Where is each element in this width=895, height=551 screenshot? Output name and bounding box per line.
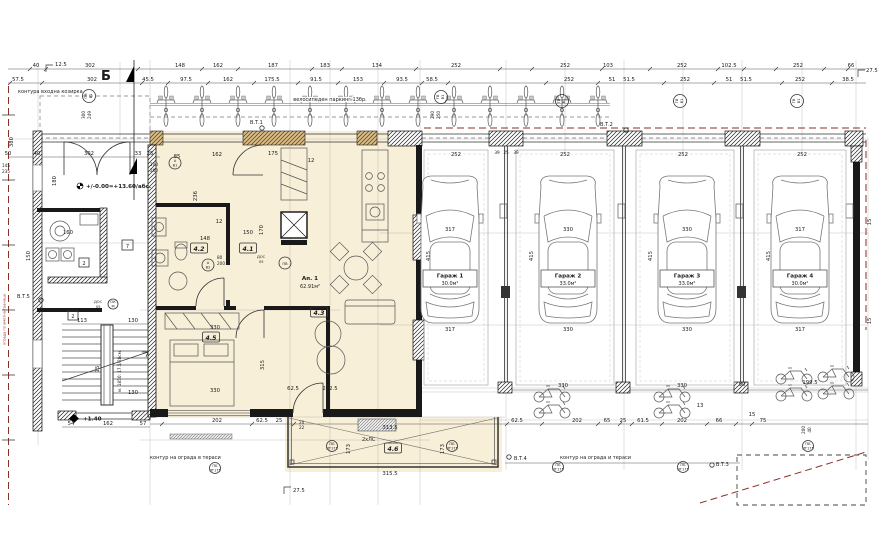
door-tag-circle: ОК xyxy=(110,300,116,304)
dim: 315.5 xyxy=(382,471,397,477)
dim: 50 xyxy=(5,151,12,157)
room-number: 4.6 xyxy=(388,446,400,453)
bicycle-icon xyxy=(301,86,319,126)
dim: 199.5 xyxy=(802,380,817,386)
dim: 12.5 xyxy=(55,62,67,68)
dim: 173 xyxy=(440,444,446,454)
garage-area: 33.0м² xyxy=(679,281,696,287)
property-boundary-left: ограда по имотна граница xyxy=(2,86,15,505)
dim: 252 xyxy=(560,152,570,158)
dim: 415 xyxy=(426,251,432,261)
dim: 62.5 xyxy=(511,418,523,424)
axis-letter: Б xyxy=(101,69,111,84)
dim: 330 xyxy=(682,327,693,333)
bicycle-icon xyxy=(229,86,247,126)
dim: 187 xyxy=(268,63,278,69)
bicycle-icon xyxy=(265,86,283,126)
dim: 162 xyxy=(212,152,222,158)
dim: 415 xyxy=(648,251,654,261)
dim: 252 xyxy=(677,63,687,69)
bicycle-icon xyxy=(157,86,175,126)
dim: 51 xyxy=(609,77,616,83)
dim: 252 xyxy=(451,152,461,158)
dim: 12 xyxy=(216,219,223,225)
fence-note-right: контур на ограда и тераси xyxy=(560,455,631,461)
dim: 62.5 xyxy=(256,418,268,424)
dim: 15 xyxy=(749,412,756,418)
dim: 315 xyxy=(260,360,266,370)
dim: 54 xyxy=(68,421,75,427)
dim: 12 xyxy=(308,158,315,164)
tag-text: ПБ xyxy=(680,463,686,467)
garage-labels: Гараж 1 30.0м² Гараж 2 33.0м² Гараж 3 33… xyxy=(423,270,827,287)
bicycle-icon xyxy=(589,86,607,126)
garage-name: Гараж 3 xyxy=(674,274,701,280)
dim: 27.5 xyxy=(293,488,305,494)
tag-text: ПТ175 xyxy=(677,468,689,472)
machinery-room xyxy=(46,214,98,261)
fence-note-left: контур на ограда в тераси xyxy=(150,455,221,461)
dim: 91.5 xyxy=(310,77,322,83)
room-number: 4.1 xyxy=(243,246,254,253)
tag-text: ПБ xyxy=(449,442,455,446)
dim: 236 xyxy=(193,190,199,201)
dim: 51.5 xyxy=(740,77,752,83)
survey-label: В.Т.2 xyxy=(600,122,613,128)
dim: 330 xyxy=(210,388,221,394)
bicycle-icon xyxy=(517,86,535,126)
tag-text: ПВ xyxy=(84,93,88,99)
room-number-box: 2 xyxy=(82,261,85,267)
bicycle-side-icon xyxy=(818,366,854,382)
dim: 162 xyxy=(213,63,223,69)
survey-label: В.Т.1 xyxy=(250,120,263,126)
dim: 15 xyxy=(867,318,873,325)
dim: 150 xyxy=(26,250,32,261)
dim: 175.5 xyxy=(264,77,279,83)
tag-text: ПВ xyxy=(282,262,288,266)
dim: 58.5 xyxy=(426,77,438,83)
tag-text: ПТ175 xyxy=(326,447,338,451)
dim: 200 xyxy=(217,261,225,266)
dim: 61.5 xyxy=(637,418,649,424)
dim: 162 xyxy=(223,77,233,83)
dim: 252 xyxy=(564,77,574,83)
dim: 317 xyxy=(795,327,805,333)
dim: 162 xyxy=(103,421,113,427)
room-number-box: 2 xyxy=(71,314,74,320)
door-tag: ДОС xyxy=(94,300,103,304)
room-number-box: 7 xyxy=(126,244,129,250)
garage-name: Гараж 1 xyxy=(437,274,464,280)
room-number: 4.3 xyxy=(314,310,325,317)
dim: 57.5 xyxy=(12,77,24,83)
dim: 38.5 xyxy=(842,77,854,83)
dim: 250 xyxy=(436,111,441,119)
room-number: 4.5 xyxy=(206,335,217,342)
dim: 25 xyxy=(276,418,283,424)
dim: 40 xyxy=(807,427,812,433)
stair-level: +1.40 xyxy=(83,417,102,423)
bicycle-icon xyxy=(445,86,463,126)
ls-note: 2хЛС xyxy=(362,437,376,443)
bicycle-side-icon xyxy=(534,402,570,418)
dim: 170 xyxy=(259,224,265,235)
dim: 249 xyxy=(87,111,92,119)
dim: 173 xyxy=(346,444,352,454)
dim: 252 xyxy=(680,77,690,83)
dim: 40 xyxy=(34,151,41,157)
survey-label: В.Т.4 xyxy=(514,456,527,462)
tag-text: В2 xyxy=(206,266,211,270)
section-axis: Б xyxy=(101,60,137,200)
dim: 183 xyxy=(320,63,330,69)
dim: 317 xyxy=(445,327,455,333)
tag-text: ГВ xyxy=(675,98,679,103)
dim: 93.5 xyxy=(396,77,408,83)
entrance-double-door xyxy=(64,142,130,175)
dim: 330 xyxy=(210,325,221,331)
dim: 202.5 xyxy=(322,386,337,392)
dim: 40 xyxy=(33,63,40,69)
bicycle-side-icon xyxy=(654,402,690,418)
dim: 302 xyxy=(87,77,97,83)
tag-text: ПТ175 xyxy=(209,469,221,473)
car-icon xyxy=(654,176,720,323)
garage-area: 30.0м² xyxy=(442,281,459,287)
car-icon xyxy=(535,176,601,323)
dim: 51 xyxy=(726,77,733,83)
dim: 148 xyxy=(200,236,211,242)
dim: 103 xyxy=(603,63,613,69)
car-icon xyxy=(767,176,833,323)
dim: 100 xyxy=(150,162,158,167)
dim: 22 xyxy=(299,425,305,430)
dim: 27.5 xyxy=(866,68,878,74)
tag-text: ПБ xyxy=(329,442,335,446)
dim: 330 xyxy=(558,383,569,389)
dim: 302 xyxy=(85,63,95,69)
dim: 175 xyxy=(268,151,278,157)
tag-text: ГВ xyxy=(557,98,561,103)
entrance-block: 2 2 7 ДОС 05 ОК М xyxy=(33,96,150,431)
dim: 25 xyxy=(147,151,154,157)
dim: 66 xyxy=(716,418,723,424)
boundary-note: ограда по имотна граница xyxy=(3,294,7,345)
dim: 80 xyxy=(217,255,223,260)
dim: 130 xyxy=(128,390,139,396)
tag-text: В1 xyxy=(173,164,178,168)
tag-text: ПБ xyxy=(212,464,218,468)
dim: 134 xyxy=(372,63,383,69)
canopy-note: контура входна козирка xyxy=(18,89,83,95)
dim: 313.5 xyxy=(382,425,397,431)
tag-text: ДОС xyxy=(257,255,266,259)
dim: 300 xyxy=(81,111,86,119)
dim: 330 xyxy=(563,227,574,233)
dim: 39 xyxy=(494,150,500,155)
door-tag-circle: М xyxy=(111,305,114,309)
tag-text: ПТ175 xyxy=(552,468,564,472)
bicycle-icon xyxy=(193,86,211,126)
tag-text: В1 xyxy=(797,99,801,104)
apartment-area: 62.91м² xyxy=(300,284,320,290)
dim: 130 xyxy=(128,318,139,324)
dim: 97.5 xyxy=(180,77,192,83)
dim: 62.5 xyxy=(287,386,299,392)
staircase: м. 1850: 17.5/28см. +1.40 xyxy=(58,325,150,423)
dim: 330 xyxy=(682,227,693,233)
car-icon xyxy=(417,176,483,323)
floor-plan-drawing: ограда по имотна граница велосипеден пар… xyxy=(0,0,895,551)
tag-text: ПТ175 xyxy=(802,447,814,451)
dim: 202 xyxy=(212,418,222,424)
dim: 317 xyxy=(445,227,455,233)
dim: 145 xyxy=(2,163,10,168)
dim: 415 xyxy=(766,251,772,261)
dim: 25 xyxy=(503,150,509,155)
tag-text: В1 xyxy=(562,99,566,104)
dim: 45.5 xyxy=(142,77,154,83)
garage-name: Гараж 2 xyxy=(555,274,582,280)
dim: 252 xyxy=(678,152,688,158)
dim: 200 xyxy=(150,168,158,173)
radiator xyxy=(170,434,232,439)
tag-text: ПБ xyxy=(805,442,811,446)
dim: 252 xyxy=(797,152,807,158)
garage-name: Гараж 4 xyxy=(787,274,814,280)
tag-text: ПБ xyxy=(555,463,561,467)
dim: 200 xyxy=(801,426,806,434)
tag-text: В1 xyxy=(680,99,684,104)
tag-text: ГВ xyxy=(792,98,796,103)
dim: 113 xyxy=(77,318,87,324)
dim: 15 xyxy=(95,366,101,373)
dim: 85 xyxy=(174,154,181,160)
dim: 66 xyxy=(848,63,855,69)
dim: 252 xyxy=(795,77,805,83)
dim: 202 xyxy=(677,418,687,424)
dim: 180 xyxy=(52,175,58,186)
dim: 150 xyxy=(243,230,254,236)
dim: 51.5 xyxy=(623,77,635,83)
dim: 25 xyxy=(620,418,627,424)
dim: 13 xyxy=(697,403,704,409)
garage-area: 30.0м² xyxy=(792,281,809,287)
dim: 153 xyxy=(353,77,363,83)
floor-plan-page: ограда по имотна граница велосипеден пар… xyxy=(0,0,895,551)
dim: 330 xyxy=(563,327,574,333)
dim: 252 xyxy=(451,63,461,69)
tag-text: В1 xyxy=(89,94,93,99)
dim: 302 xyxy=(84,151,94,157)
dim: 90 xyxy=(739,382,746,388)
apartment-name: Ап. 1 xyxy=(302,276,318,282)
bicycle-icon xyxy=(373,86,391,126)
dim: 75 xyxy=(760,418,767,424)
tag-text: 05 xyxy=(259,260,264,264)
dim: 330 xyxy=(677,383,688,389)
door-tag: 05 xyxy=(96,305,101,309)
bicycle-icon xyxy=(553,86,571,126)
dim: 235 xyxy=(2,169,10,174)
dim: 380 xyxy=(9,136,15,147)
survey-label: В.Т.3 xyxy=(716,462,729,468)
bicycle-side-icon xyxy=(818,383,854,399)
bicycle-side-icon xyxy=(776,385,812,401)
tag-text: В1 xyxy=(441,95,445,100)
dim: 160 xyxy=(63,230,74,236)
dim: 202 xyxy=(572,418,582,424)
bike-parking-note: велосипеден паркинг 13бр. xyxy=(293,97,367,103)
dim: 33 xyxy=(135,151,142,157)
abs-level: +/-0.00=+13.60/абс. xyxy=(86,183,151,190)
bicycle-icon xyxy=(409,86,427,126)
dim: 317 xyxy=(795,227,805,233)
dim: 415 xyxy=(529,251,535,261)
garage-area: 33.0м² xyxy=(560,281,577,287)
canopy-outline xyxy=(40,96,150,138)
tag-text: ПТ175 xyxy=(446,447,458,451)
tag-text: ГВ xyxy=(436,94,440,99)
dim: 148 xyxy=(175,63,186,69)
duct-shaft xyxy=(281,212,307,245)
dim: 65 xyxy=(604,418,611,424)
room-number: 4.2 xyxy=(194,246,205,253)
bicycle-parking-row: велосипеден паркинг 13бр. xyxy=(150,86,610,126)
dim: 252 xyxy=(560,63,570,69)
dim: 39 xyxy=(513,150,519,155)
bicycle-icon xyxy=(337,86,355,126)
dim: 15 xyxy=(867,219,873,226)
dim: 57 xyxy=(140,421,147,427)
dim: 290 xyxy=(430,111,435,119)
dim: 102.5 xyxy=(721,63,736,69)
bicycle-icon xyxy=(481,86,499,126)
survey-label: В.Т.5 xyxy=(17,294,30,300)
stair-note: м. 1850: 17.5/28см. xyxy=(117,350,122,392)
dim: 252 xyxy=(793,63,803,69)
